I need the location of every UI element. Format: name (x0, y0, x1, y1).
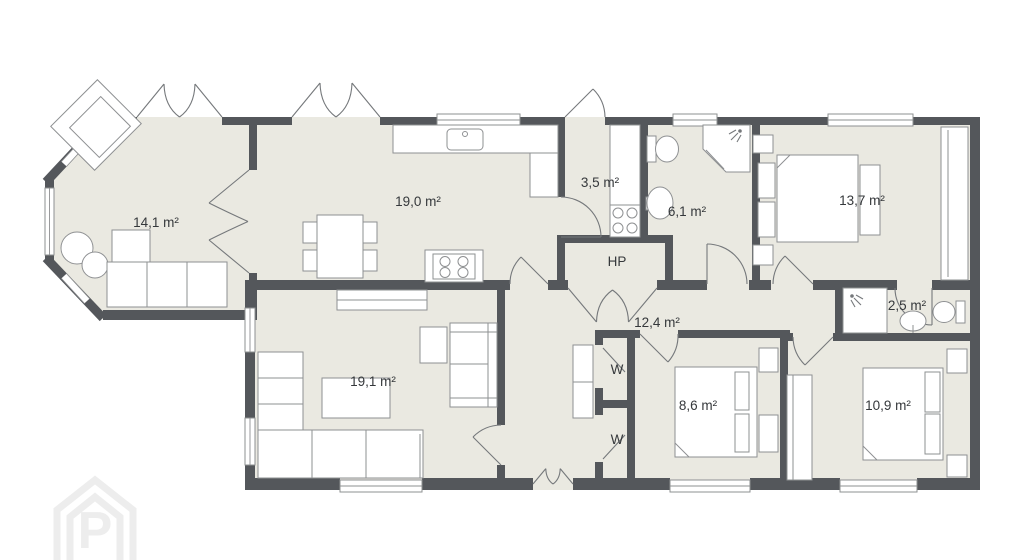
toilet-icon (647, 136, 679, 162)
terrace-double-door-2 (292, 83, 380, 117)
window-living-left-2 (245, 418, 255, 465)
hall-furniture (573, 345, 593, 418)
double-bed-icon (863, 368, 943, 460)
nightstand-icon (947, 455, 967, 477)
window-bedroom-large (828, 114, 913, 126)
room-label-utility: 3,5 m² (581, 175, 620, 190)
watermark-letter: P (78, 502, 113, 560)
nightstand-icon (947, 349, 967, 373)
room-label-bath: 6,1 m² (668, 204, 707, 219)
toilet-icon (933, 301, 965, 323)
sideboard-icon (337, 290, 427, 310)
nightstand-icon (759, 348, 778, 372)
stove-icon (425, 250, 483, 282)
kitchen-counter-corner-icon (530, 153, 558, 197)
hall-shelf-icon (573, 345, 593, 418)
window-living-left-1 (245, 308, 255, 352)
room-label-wardrobe-top: W (611, 362, 624, 377)
wardrobe-icon (787, 375, 812, 480)
loveseat-icon (450, 323, 497, 407)
room-label-living-bay: 14,1 m² (133, 215, 179, 230)
sofa-chaise-icon (112, 230, 150, 262)
room-label-wc: 2,5 m² (888, 298, 927, 313)
window-bath (673, 114, 717, 126)
room-label-living: 19,1 m² (350, 374, 396, 389)
floor-plan-page: 14,1 m² 19,0 m² 3,5 m² 6,1 m² 13,7 m² HP… (0, 0, 1024, 560)
window-bedroom-right (840, 480, 917, 492)
dresser-icon (753, 135, 773, 153)
utility-counter-icon (610, 125, 640, 205)
nightstand-icon (753, 245, 773, 265)
room-label-bedroom-mid: 8,6 m² (679, 398, 718, 413)
dresser-icon (759, 415, 778, 452)
round-table-small-icon (82, 252, 108, 278)
cooktop-icon (610, 205, 640, 237)
floor-plan: 14,1 m² 19,0 m² 3,5 m² 6,1 m² 13,7 m² HP… (0, 0, 1024, 560)
terrace-double-door-1 (137, 84, 222, 117)
room-label-kitchen: 19,0 m² (395, 194, 441, 209)
wardrobe-icon (941, 127, 968, 280)
room-label-bedroom-right: 10,9 m² (865, 398, 911, 413)
window-living-bottom (340, 480, 422, 492)
window-bedroom-mid (670, 480, 750, 492)
kitchen-sink-icon (447, 129, 483, 150)
room-label-wardrobe-bottom: W (611, 432, 624, 447)
room-label-hallway: 12,4 m² (634, 315, 680, 330)
room-label-hp: HP (608, 254, 627, 269)
window-bay-left (45, 188, 54, 255)
shower-icon (843, 288, 887, 333)
window-kitchen (437, 114, 520, 126)
utility-exterior-door (565, 89, 605, 117)
sofa-icon (107, 262, 227, 307)
watermark-logo: P (57, 480, 133, 560)
room-label-bedroom-large: 13,7 m² (839, 193, 885, 208)
side-table-icon (420, 327, 447, 363)
